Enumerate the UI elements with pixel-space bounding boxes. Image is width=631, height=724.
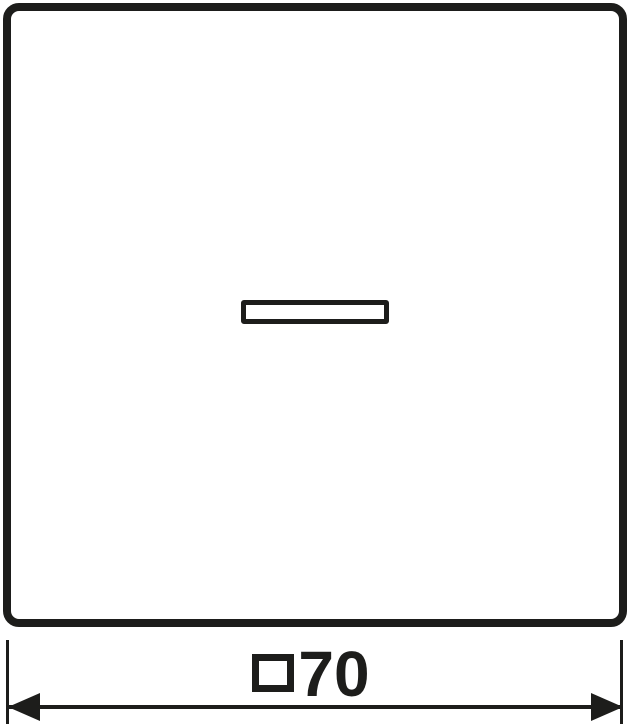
square-symbol-icon xyxy=(252,654,294,692)
dimension-drawing: 70 xyxy=(0,0,631,724)
indicator-window xyxy=(241,300,389,324)
dimension-value: 70 xyxy=(298,638,369,710)
dimension-label: 70 xyxy=(0,642,622,706)
